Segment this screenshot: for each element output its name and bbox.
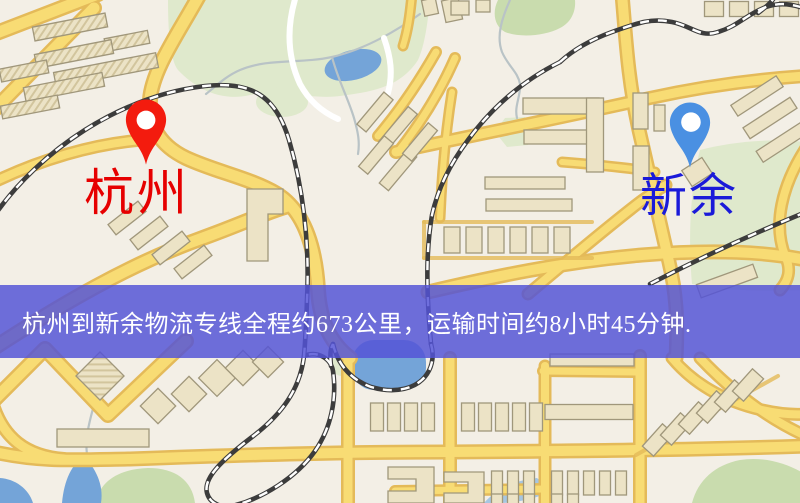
route-info-banner: 杭州到新余物流专线全程约673公里，运输时间约8小时45分钟. [0, 285, 800, 358]
route-info-text: 杭州到新余物流专线全程约673公里，运输时间约8小时45分钟. [0, 304, 692, 339]
destination-pin-icon [667, 100, 713, 172]
destination-city-label: 新余 [640, 174, 738, 221]
pin-hole [681, 112, 701, 132]
origin-city-label: 杭州 [84, 168, 190, 218]
pin-shape [670, 102, 710, 167]
map-canvas[interactable] [0, 0, 800, 503]
origin-pin-icon [123, 97, 169, 169]
origin-pin[interactable] [123, 97, 169, 169]
pin-shape [126, 99, 166, 164]
logistics-route-map: 杭州 新余 杭州到新余物流专线全程约673公里，运输时间约8小时45分钟. [0, 0, 800, 503]
destination-pin[interactable] [667, 100, 713, 172]
pin-hole [137, 111, 156, 130]
